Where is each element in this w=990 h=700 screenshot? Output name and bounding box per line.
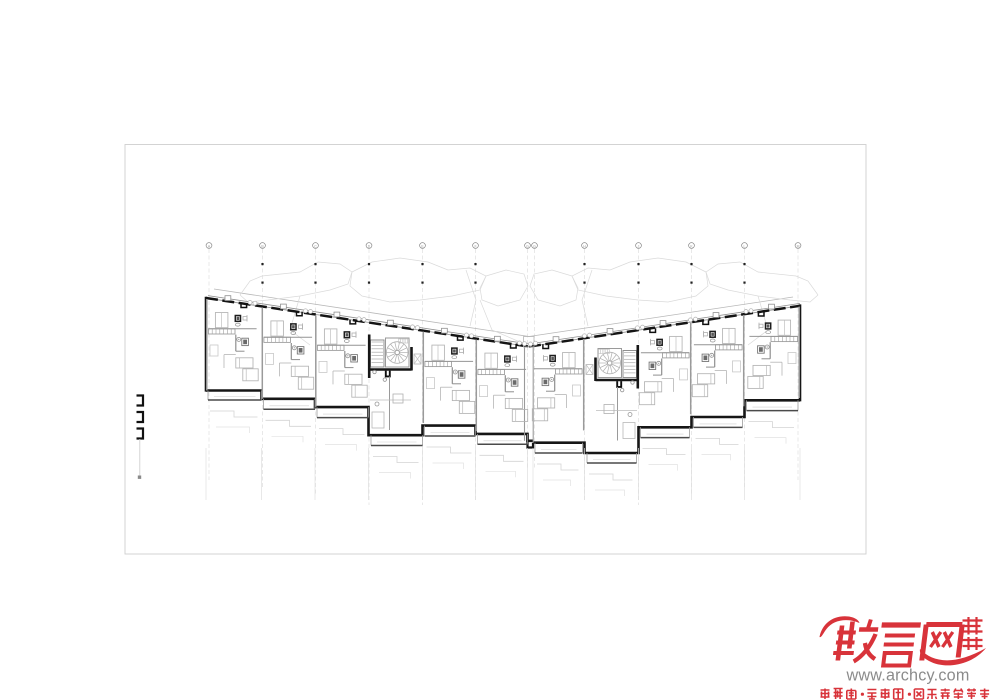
svg-text:L: L [744,244,746,248]
svg-text:F: F [474,244,476,248]
svg-text:www.archcy.com: www.archcy.com [846,667,970,685]
svg-text:G: G [533,244,536,248]
svg-text:M: M [797,244,800,248]
svg-text:J: J [638,244,640,248]
svg-text:G: G [526,244,529,248]
